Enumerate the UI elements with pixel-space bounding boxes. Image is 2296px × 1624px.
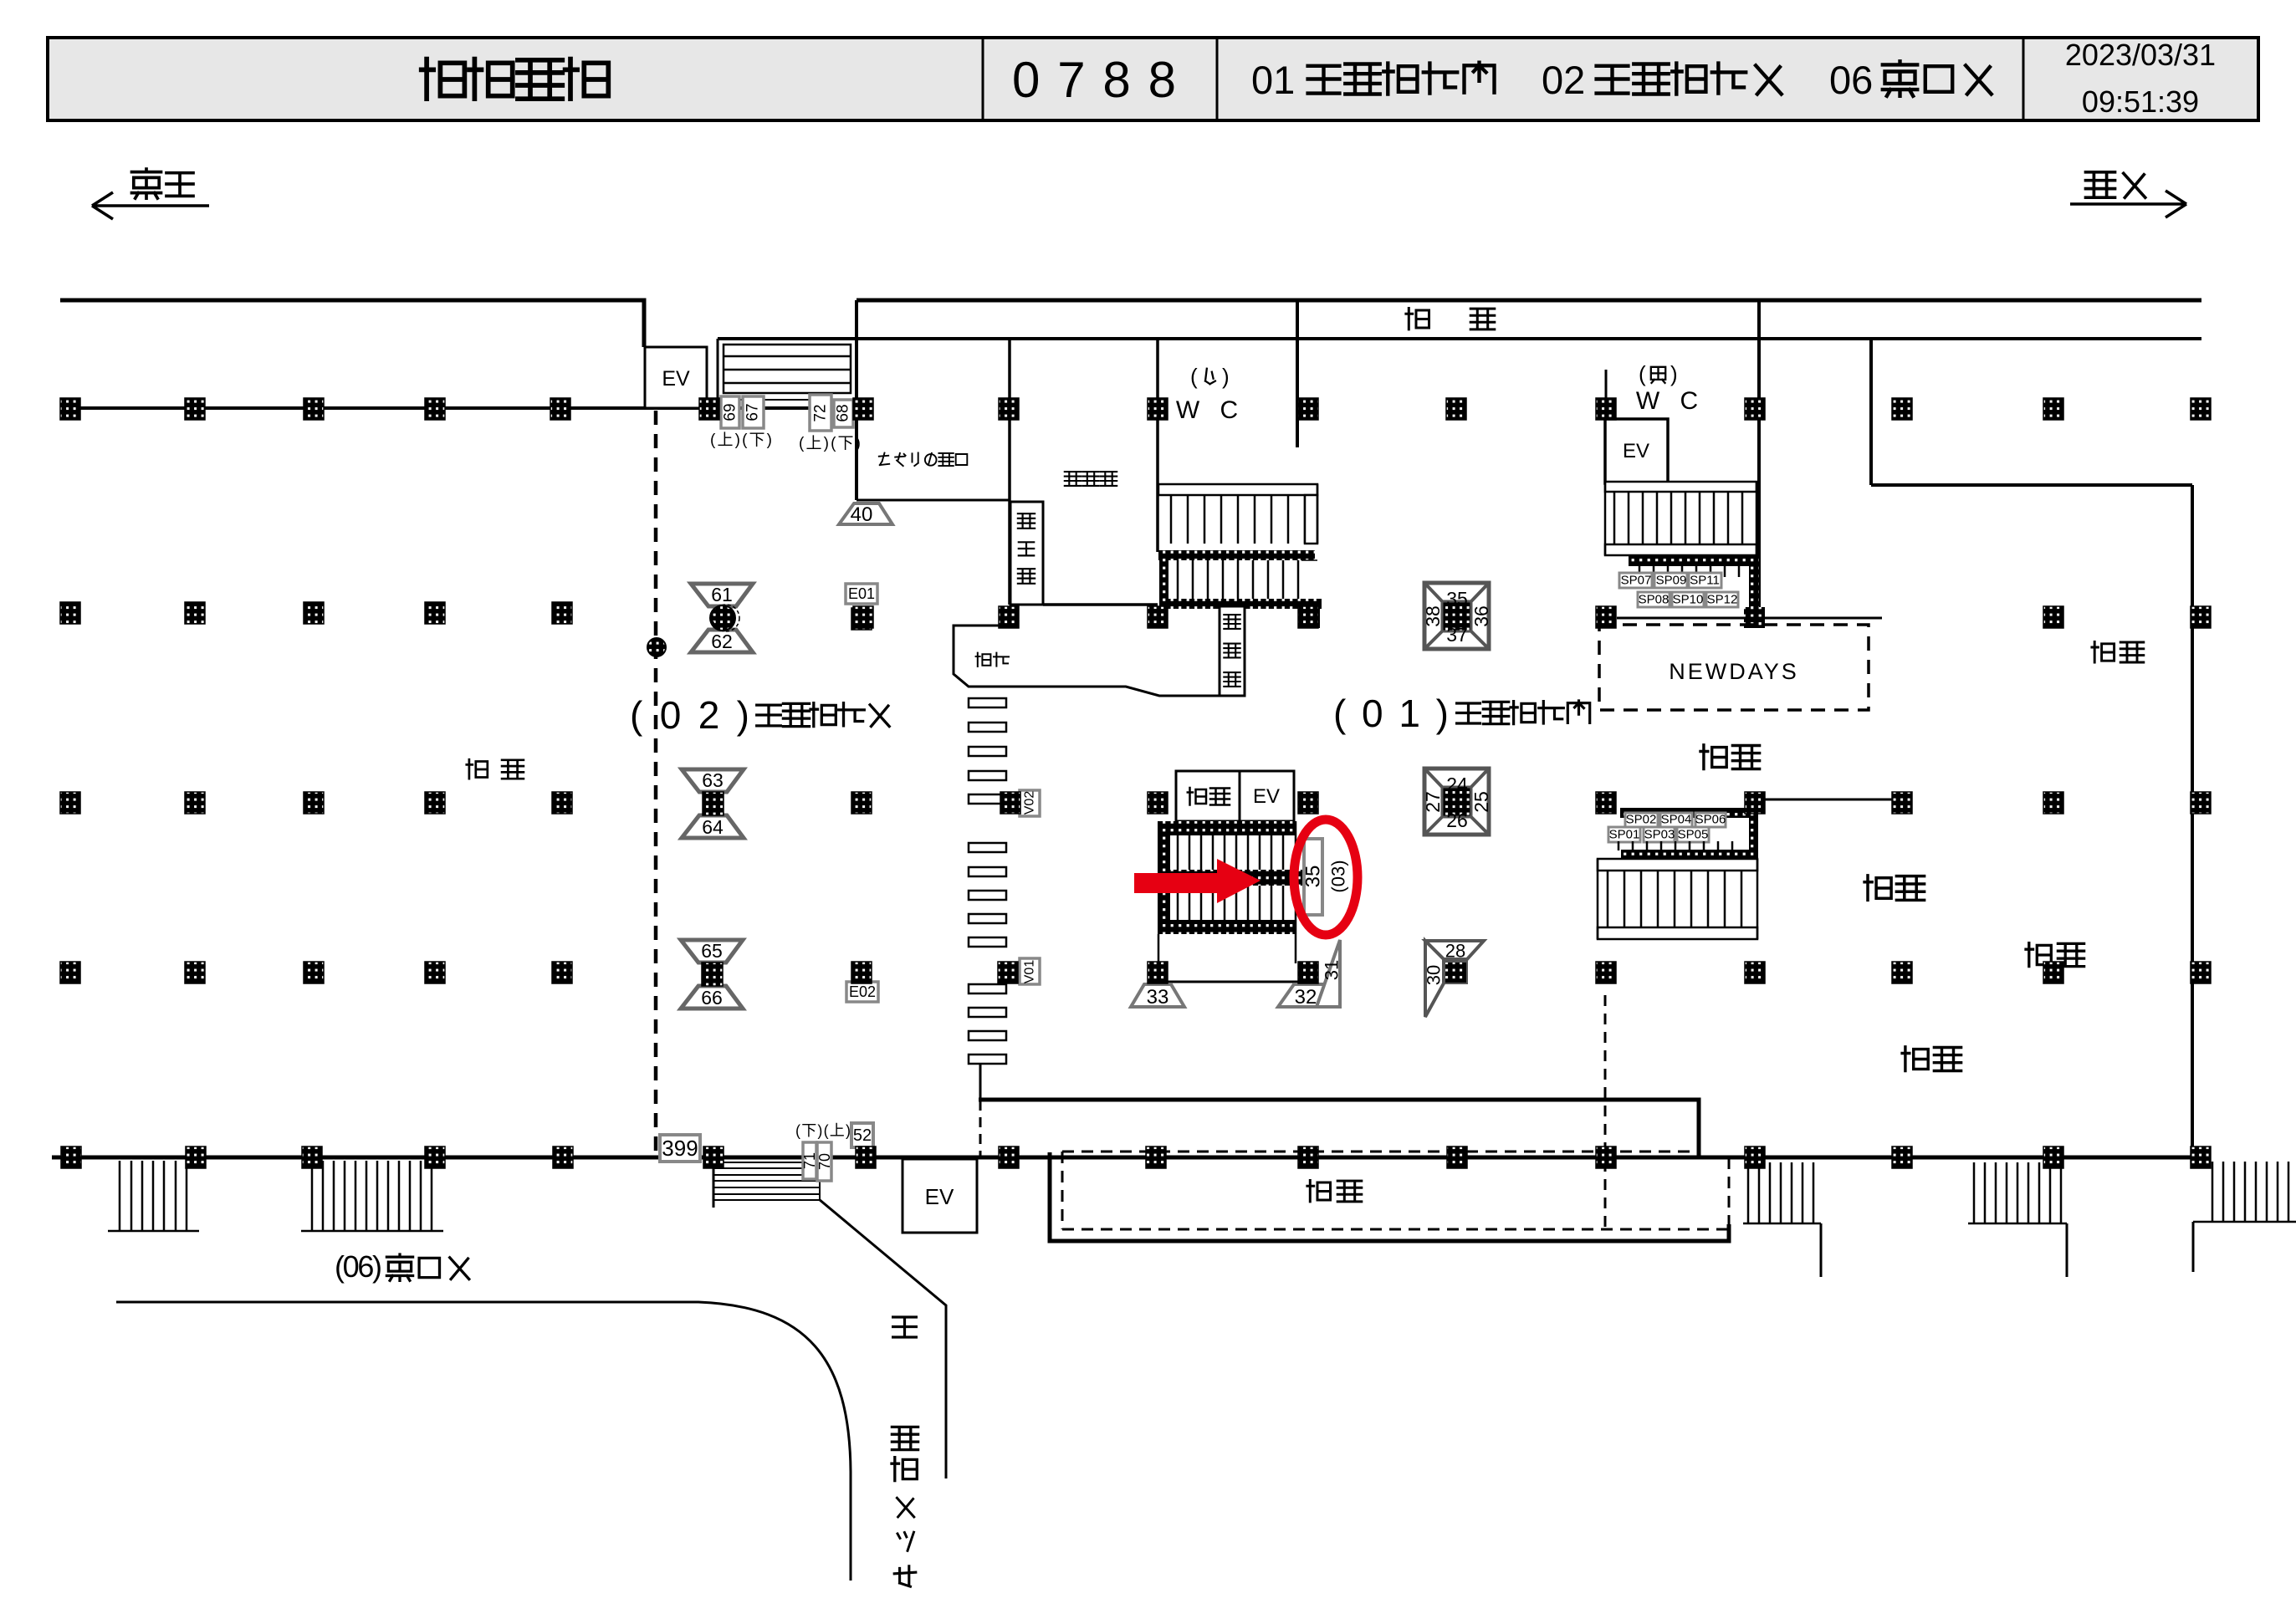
svg-text:35: 35 (1446, 588, 1468, 610)
svg-text:64: 64 (702, 816, 724, 838)
svg-text:06: 06 (1829, 58, 1873, 102)
svg-text:SP06: SP06 (1695, 813, 1726, 827)
svg-text:09:51:39: 09:51:39 (2082, 84, 2199, 119)
svg-text:): ) (1670, 361, 1678, 386)
svg-text:32: 32 (1295, 986, 1317, 1009)
svg-text:65: 65 (701, 940, 723, 962)
svg-text:31: 31 (1322, 960, 1342, 980)
svg-text:EV: EV (1253, 785, 1280, 808)
svg-text:63: 63 (702, 769, 724, 791)
svg-text:28: 28 (1445, 941, 1465, 962)
svg-text:SP08: SP08 (1639, 593, 1670, 607)
svg-text:69: 69 (722, 403, 739, 421)
svg-text:EV: EV (1623, 440, 1649, 462)
svg-text:(06): (06) (335, 1249, 382, 1284)
svg-text:V02: V02 (1023, 791, 1037, 815)
svg-text:E01: E01 (848, 585, 875, 602)
svg-text:W C: W C (1636, 387, 1705, 415)
svg-text:SP01: SP01 (1609, 828, 1640, 842)
svg-text:V01: V01 (1023, 960, 1037, 984)
svg-text:62: 62 (711, 631, 733, 652)
svg-text:24: 24 (1446, 774, 1468, 795)
svg-text:40: 40 (851, 503, 873, 526)
svg-text:SP04: SP04 (1661, 813, 1692, 827)
svg-text:): ) (1222, 364, 1230, 389)
svg-text:67: 67 (744, 403, 762, 421)
svg-text:SP03: SP03 (1644, 828, 1675, 842)
svg-text:30: 30 (1424, 965, 1445, 985)
svg-text:66: 66 (701, 987, 723, 1009)
svg-text:26: 26 (1446, 809, 1468, 831)
svg-text:72: 72 (812, 404, 830, 421)
svg-text:68: 68 (835, 404, 852, 421)
svg-text:SP07: SP07 (1621, 574, 1652, 588)
svg-text:NEWDAYS: NEWDAYS (1669, 659, 1799, 684)
svg-text:(: ( (1639, 361, 1646, 386)
svg-text:SP09: SP09 (1656, 574, 1687, 588)
svg-text:70: 70 (816, 1153, 833, 1170)
svg-text:SP05: SP05 (1678, 828, 1709, 842)
svg-text:33: 33 (1147, 986, 1169, 1009)
svg-text:(03): (03) (1328, 860, 1349, 892)
svg-text:SP11: SP11 (1690, 574, 1720, 588)
svg-text:27: 27 (1422, 791, 1444, 813)
svg-text:EV: EV (925, 1184, 954, 1209)
svg-text:SP10: SP10 (1673, 593, 1704, 607)
svg-text:399: 399 (662, 1136, 698, 1161)
svg-text:SP02: SP02 (1626, 813, 1657, 827)
svg-text:(下)(上): (下)(上) (795, 1122, 851, 1139)
svg-text:25: 25 (1470, 791, 1492, 813)
svg-text:(: ( (1190, 364, 1198, 389)
svg-text:01: 01 (1251, 58, 1295, 102)
svg-text:71: 71 (801, 1152, 818, 1169)
svg-text:37: 37 (1446, 624, 1468, 646)
svg-text:EV: EV (662, 367, 690, 391)
svg-text:02: 02 (1542, 58, 1585, 102)
svg-text:35: 35 (1302, 866, 1325, 888)
svg-text:36: 36 (1470, 605, 1492, 627)
svg-text:E02: E02 (849, 983, 876, 1000)
svg-text:52: 52 (853, 1126, 872, 1145)
svg-text:SP12: SP12 (1707, 593, 1738, 607)
svg-text:38: 38 (1422, 605, 1444, 627)
svg-text:2023/03/31: 2023/03/31 (2065, 38, 2216, 72)
svg-text:W C: W C (1176, 396, 1245, 424)
svg-text:61: 61 (711, 584, 733, 605)
